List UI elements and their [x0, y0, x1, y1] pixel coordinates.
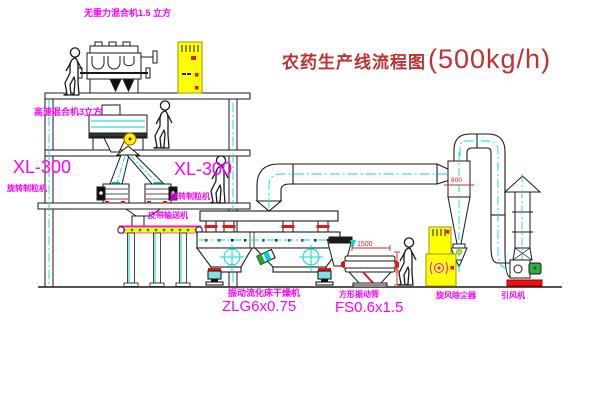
- sieve-length-dimension: 1500: [357, 241, 373, 248]
- worker-second-floor: [154, 101, 172, 148]
- control-cabinet-lower: [426, 227, 456, 286]
- induced-draft-fan: [507, 260, 542, 286]
- sieve-height-dimension: 900: [392, 261, 399, 273]
- granulator-center-name-label: 旋转制粒机: [170, 193, 210, 201]
- granulator-left-name-label: 旋转制粒机: [7, 185, 47, 193]
- drawing-title-capacity: (500kg/h): [428, 46, 551, 73]
- cyclone-label: 旋风除尘器: [436, 292, 476, 300]
- drawing-title: 农药生产线流程图 (500kg/h): [282, 46, 551, 73]
- gravity-free-mixer-label: 无重力混合机1.5 立方: [84, 9, 171, 18]
- exhaust-duct: [257, 164, 450, 211]
- granulator-left: [97, 182, 129, 204]
- granulator-center-model-label: XL-300: [174, 160, 232, 178]
- cyclone-dimension: 800: [451, 178, 462, 185]
- high-speed-mixer-label: 高速混合机3立方: [34, 108, 102, 117]
- sieve-name-label: 方形振动筛: [339, 291, 379, 299]
- process-flow-drawing: 无重力混合机1.5 立方 农药生产线流程图 (500kg/h) 高速混合机3立方…: [0, 0, 600, 403]
- worker-ground: [398, 238, 416, 285]
- granulator-left-model-label: XL-300: [13, 158, 71, 176]
- control-cabinet-upper: [178, 42, 202, 93]
- belt-conveyor-label: 皮带输送机: [148, 212, 188, 220]
- dryer-name-label: 振动流化床干燥机: [228, 289, 300, 298]
- fan-label: 引风机: [501, 292, 525, 300]
- fluid-bed-dryer: [197, 211, 340, 285]
- dryer-model-label: ZLG6x0.75: [222, 299, 296, 314]
- sieve-model-label: FS0.6x1.5: [335, 300, 403, 315]
- gravity-free-mixer: [78, 42, 157, 93]
- drawing-title-text: 农药生产线流程图: [282, 54, 426, 71]
